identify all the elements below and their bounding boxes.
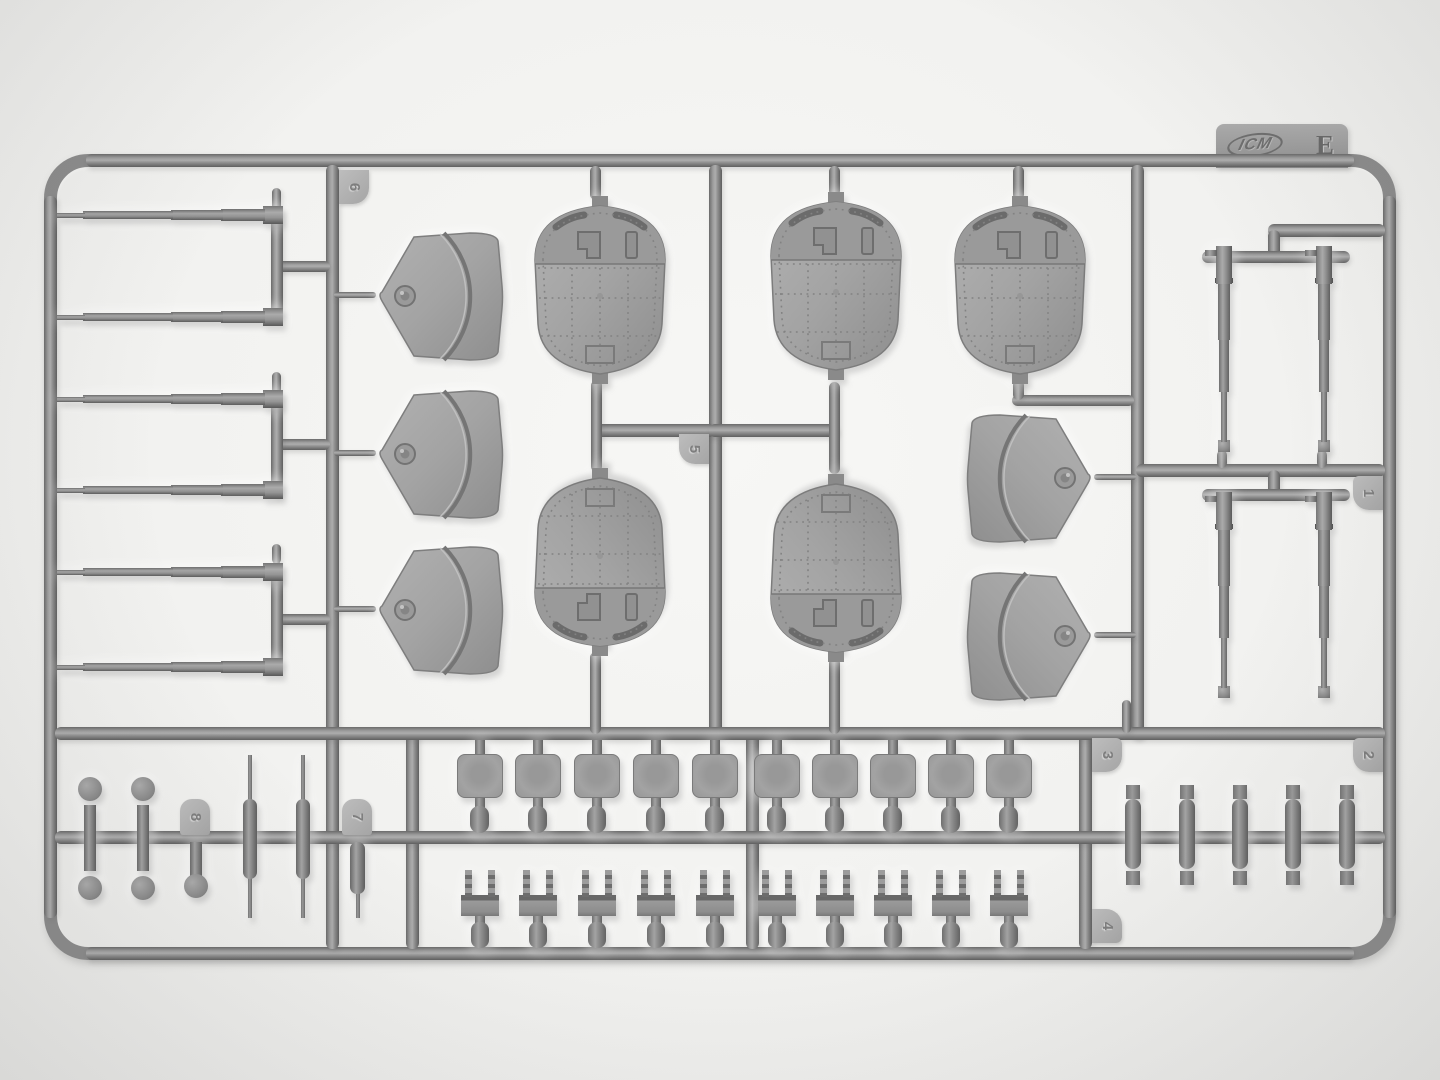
runner-horizontal-divider: [55, 727, 1385, 740]
bracket-part: [932, 870, 970, 948]
capsule-pin-part: [350, 842, 366, 918]
pin-part: [1232, 785, 1248, 885]
turret-roof-part: [946, 196, 1094, 384]
part-number-label: 8: [177, 802, 213, 832]
runner-left-branch-3: [276, 614, 330, 625]
runner-gate-oval5-bottom: [829, 658, 840, 734]
runner-gate-fan-5-bottom: [1122, 700, 1131, 733]
turret-platform-fan-part: [966, 568, 1098, 706]
runner-gate-col3: [829, 382, 840, 474]
bracket-part: [758, 870, 796, 948]
turret-roof-part: [526, 468, 674, 656]
pin-part: [1125, 785, 1141, 885]
hatch-plate-part: [812, 740, 858, 836]
runner-connector-col3: [709, 424, 839, 437]
bracket-part: [578, 870, 616, 948]
hatch-plate-part: [986, 740, 1032, 836]
bracket-part: [696, 870, 734, 948]
frame-runner-top: [86, 154, 1354, 167]
gun-barrel-rod-part: [57, 305, 283, 329]
bracket-part: [816, 870, 854, 948]
runner-gate-fan-2: [334, 450, 376, 456]
hatch-plate-part: [692, 740, 738, 836]
part-number-label: 2: [1351, 740, 1385, 770]
frame-runner-bottom: [86, 947, 1354, 960]
hatch-plate-part: [515, 740, 561, 836]
turret-roof-part: [526, 196, 674, 384]
runner-left-branch-2: [276, 439, 330, 450]
part-number-label: 3: [1090, 740, 1124, 770]
bracket-part: [637, 870, 675, 948]
runner-gate-fan-4: [1094, 474, 1136, 480]
runner-gate-fan-5: [1094, 632, 1136, 638]
part-number-tab: 5: [679, 434, 709, 464]
spindle-part: [296, 755, 310, 918]
main-gun-barrel-part: [1305, 246, 1339, 460]
runner-gate-oval2-bottom: [590, 652, 601, 734]
runner-gate-oval4-top: [1013, 166, 1024, 200]
gun-barrel-rod-part: [57, 478, 283, 502]
gun-barrel-rod-part: [57, 560, 283, 584]
bracket-part: [461, 870, 499, 948]
turret-platform-fan-part: [372, 228, 504, 366]
turret-roof-part: [762, 192, 910, 380]
hatch-plate-part: [928, 740, 974, 836]
pin-part: [1285, 785, 1301, 885]
main-gun-barrel-part: [1305, 492, 1339, 706]
runner-gate-fan-1: [334, 292, 376, 298]
runner-gate-oval1-top: [590, 166, 601, 200]
sprue-photo: 1 2 3 4 5 6 7 8 ICM E: [0, 0, 1440, 1080]
runner-left-branch-1: [276, 261, 330, 272]
part-number-label: 5: [679, 434, 709, 464]
part-number-label: 6: [337, 172, 371, 202]
frame-runner-right: [1383, 196, 1396, 918]
runner-gate-fan-3: [334, 606, 376, 612]
turret-platform-fan-part: [372, 386, 504, 524]
bracket-part: [519, 870, 557, 948]
hatch-plate-part: [457, 740, 503, 836]
ball-pin-part: [131, 777, 155, 900]
part-number-tab: 8: [180, 799, 210, 835]
turret-platform-fan-part: [966, 410, 1098, 548]
hatch-plate-part: [633, 740, 679, 836]
main-gun-barrel-part: [1205, 492, 1239, 706]
part-number-tab: 7: [342, 799, 372, 835]
gun-barrel-rod-part: [57, 655, 283, 679]
runner-right-top-bar: [1268, 224, 1385, 237]
pin-part: [1339, 785, 1355, 885]
hatch-plate-part: [754, 740, 800, 836]
ball-pin-part: [78, 777, 102, 900]
part-number-tab: 2: [1353, 738, 1383, 772]
part-number-label: 4: [1090, 911, 1124, 941]
turret-platform-fan-part: [372, 542, 504, 680]
part-number-tab: 6: [339, 170, 369, 204]
runner-gate-col2: [591, 380, 602, 472]
bracket-part: [874, 870, 912, 948]
part-number-label: 1: [1351, 478, 1385, 508]
turret-roof-part: [762, 474, 910, 662]
hatch-plate-part: [574, 740, 620, 836]
part-number-tab: 1: [1353, 476, 1383, 510]
ball-pin-part: [184, 842, 208, 898]
bracket-part: [990, 870, 1028, 948]
hatch-plate-part: [870, 740, 916, 836]
gun-barrel-rod-part: [57, 203, 283, 227]
spindle-part: [243, 755, 257, 918]
runner-connector-col3-right: [1012, 395, 1134, 406]
main-gun-barrel-part: [1205, 246, 1239, 460]
pin-part: [1179, 785, 1195, 885]
frame-runner-left: [44, 196, 57, 918]
gun-barrel-rod-part: [57, 387, 283, 411]
part-number-tab: 4: [1092, 909, 1122, 943]
part-number-label: 7: [339, 802, 375, 832]
runner-vertical-3: [1131, 165, 1144, 740]
runner-vertical-2: [709, 165, 722, 740]
part-number-tab: 3: [1092, 738, 1122, 772]
runner-right-mid-bar: [1136, 464, 1385, 477]
